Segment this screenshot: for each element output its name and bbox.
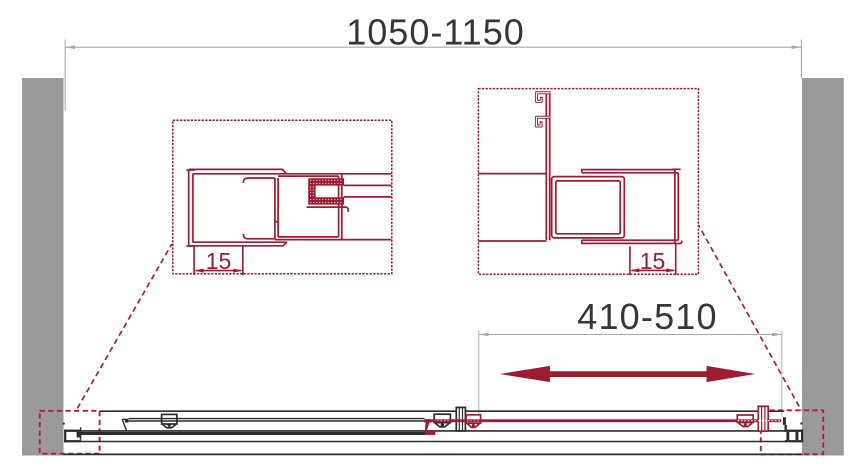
svg-text:15: 15 — [206, 248, 232, 274]
svg-text:15: 15 — [640, 248, 666, 274]
svg-text:410-510: 410-510 — [577, 296, 718, 337]
svg-text:1050-1150: 1050-1150 — [346, 12, 525, 53]
